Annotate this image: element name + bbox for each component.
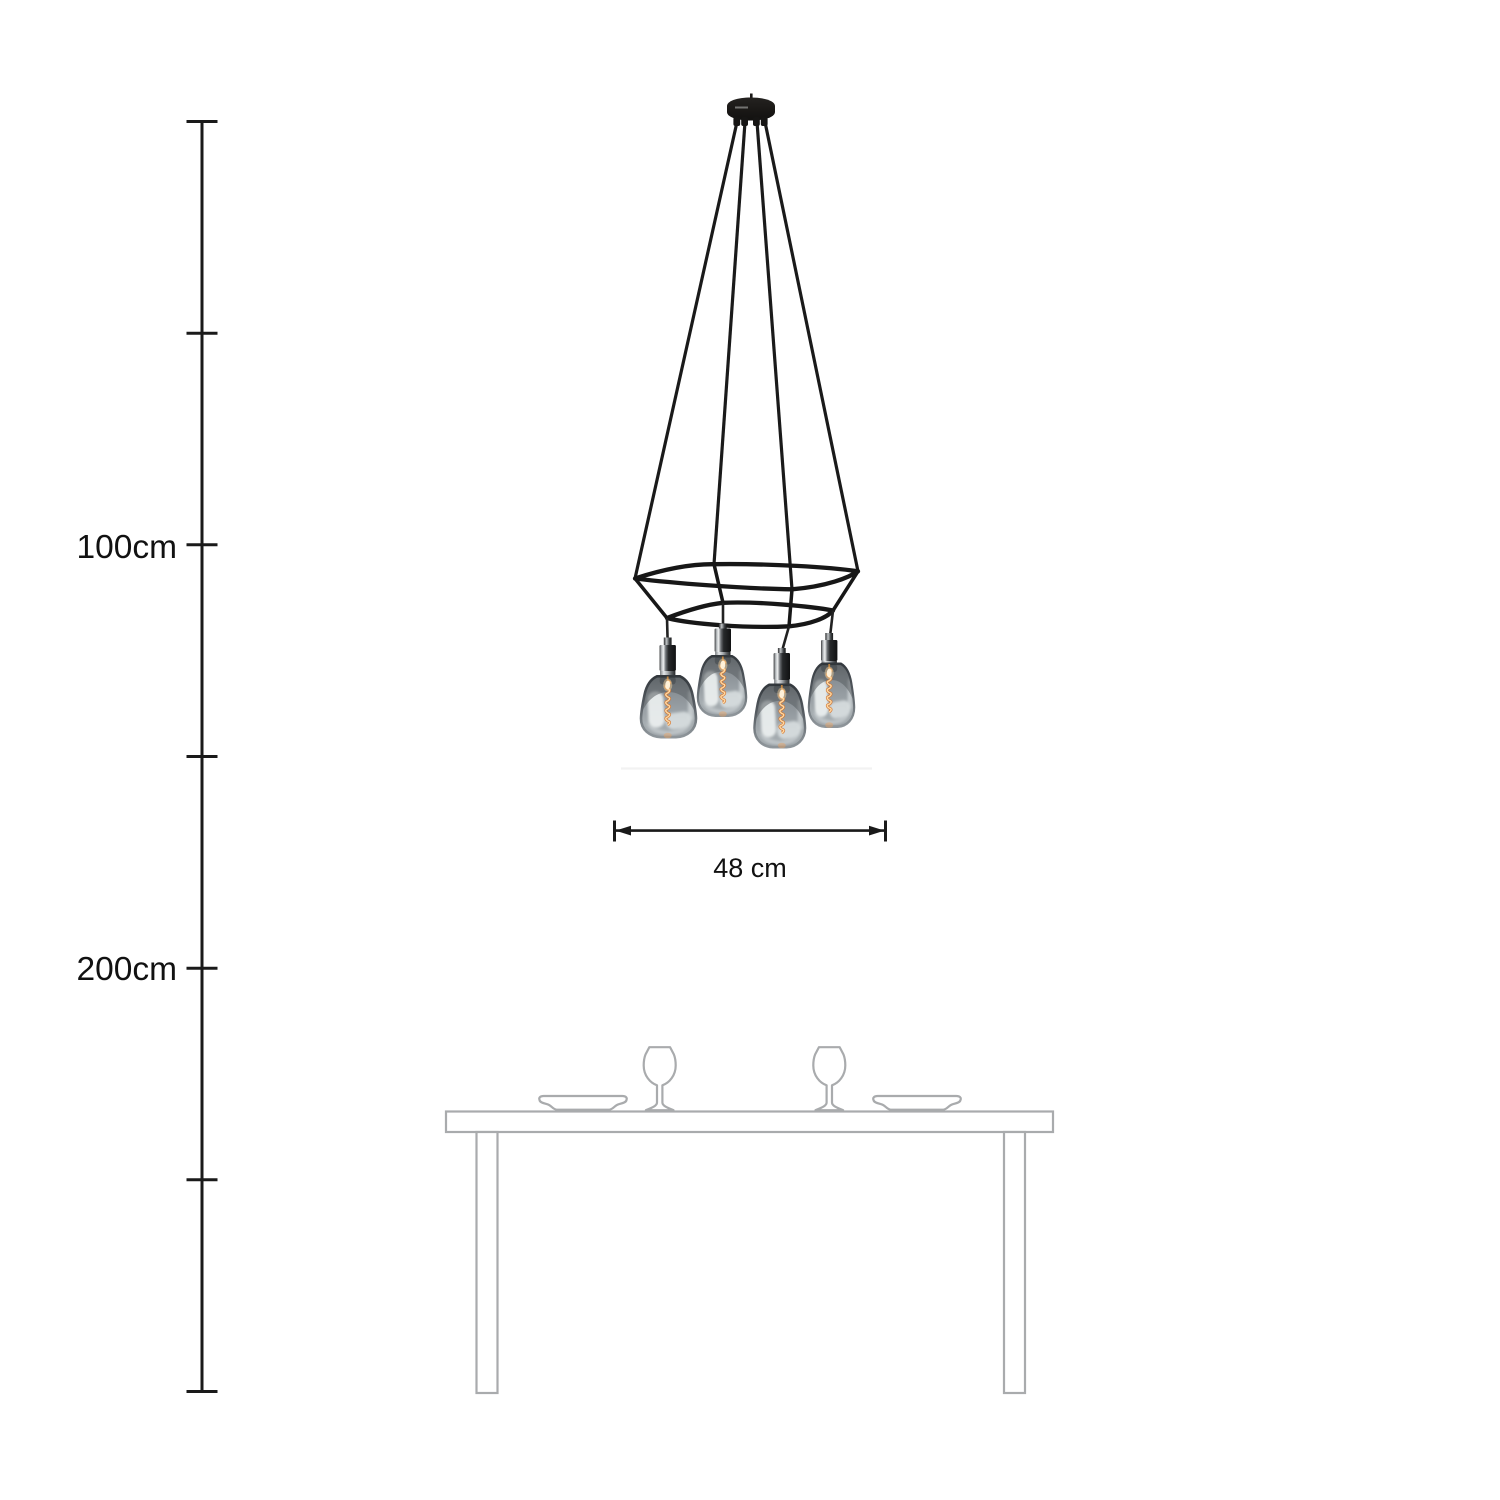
svg-text:200cm: 200cm: [76, 951, 177, 988]
svg-text:100cm: 100cm: [76, 529, 177, 566]
svg-text:48 cm: 48 cm: [713, 853, 787, 883]
